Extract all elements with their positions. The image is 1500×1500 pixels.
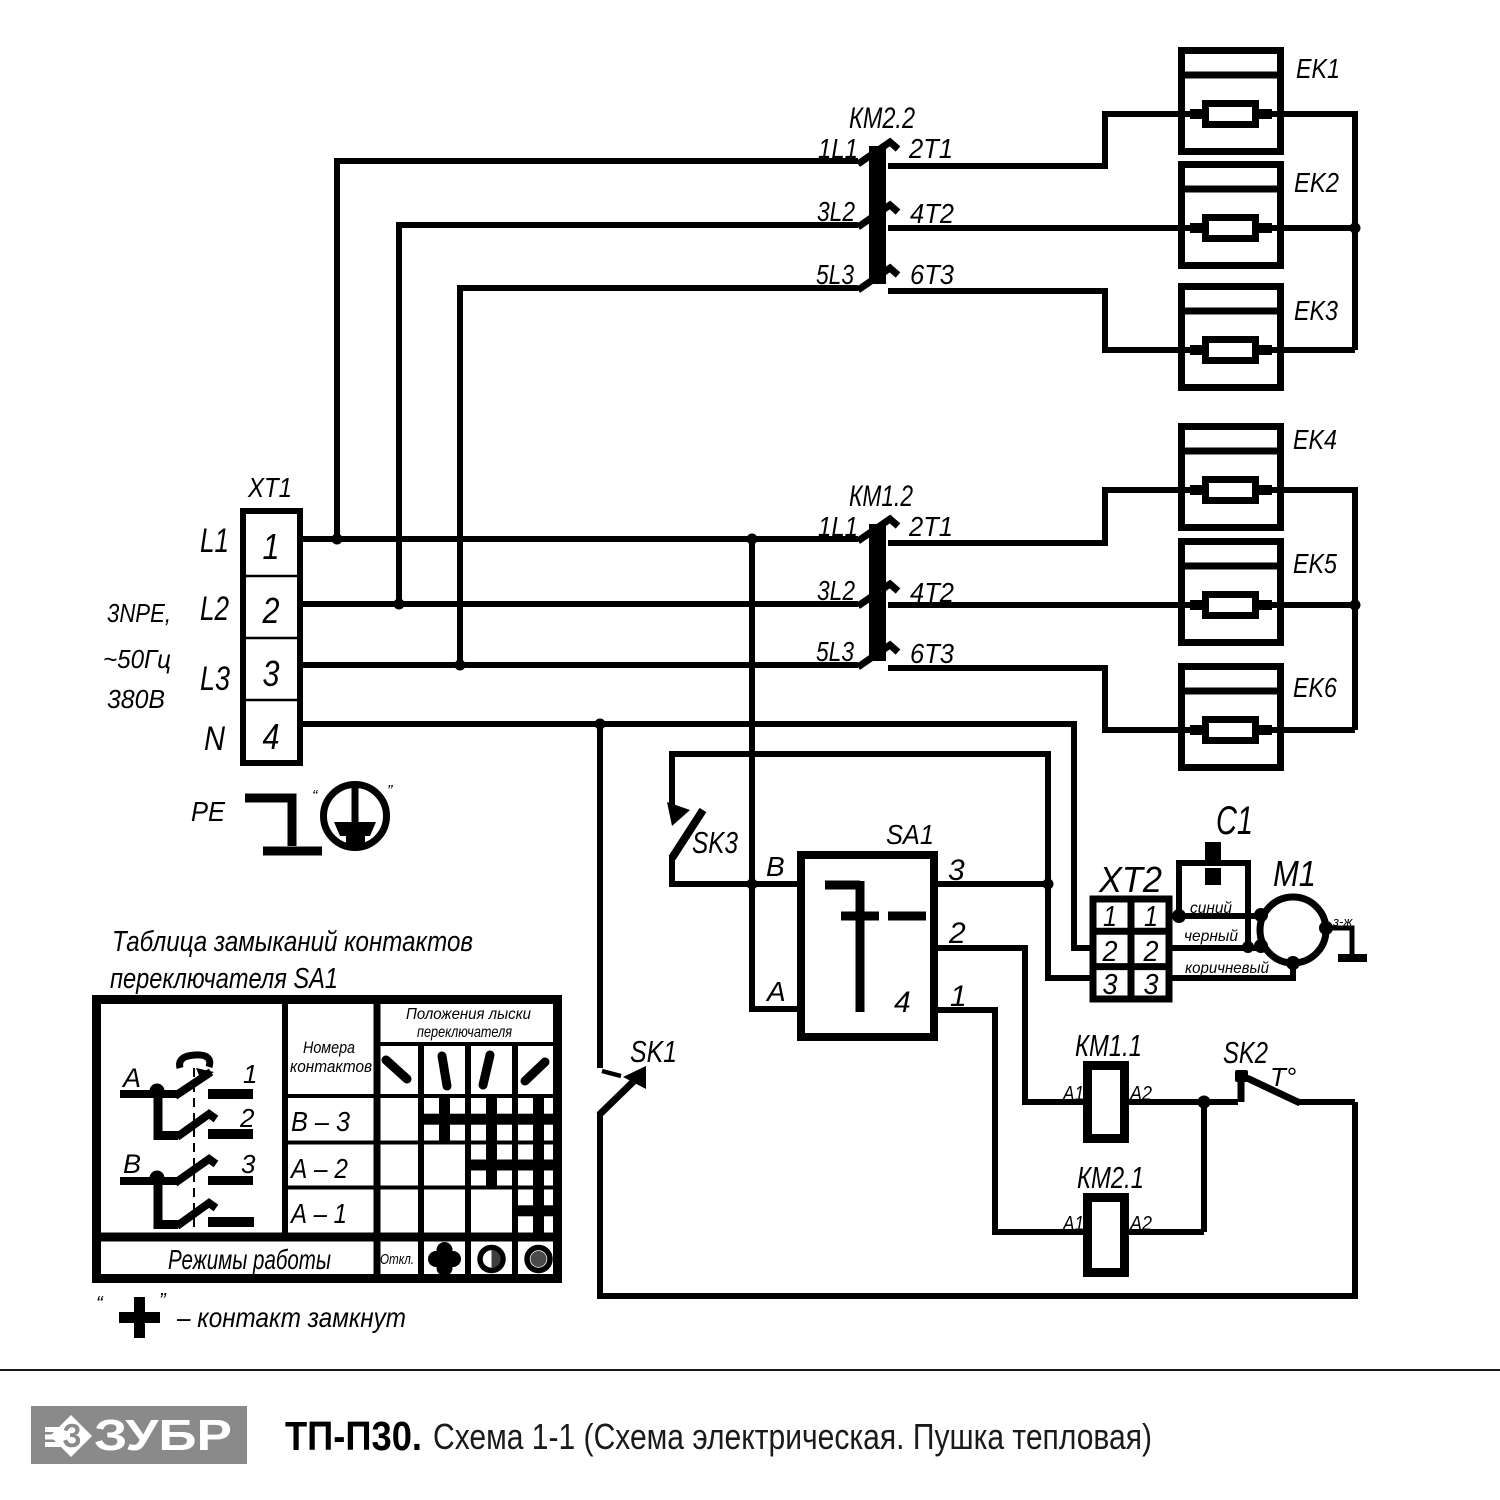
svg-text:Откл.: Откл. — [380, 1251, 414, 1268]
svg-text:А2: А2 — [1129, 1083, 1152, 1105]
svg-text:Режимы работы: Режимы работы — [168, 1244, 331, 1275]
svg-text:– контакт замкнут: – контакт замкнут — [176, 1302, 406, 1333]
svg-text:1L1: 1L1 — [818, 511, 858, 542]
svg-text:EK2: EK2 — [1294, 167, 1339, 198]
svg-text:В – 3: В – 3 — [291, 1106, 350, 1137]
svg-text:З: З — [63, 1417, 82, 1454]
svg-text:3: 3 — [241, 1149, 256, 1179]
svg-text:SK1: SK1 — [630, 1034, 677, 1069]
svg-text:А – 1: А – 1 — [289, 1198, 347, 1229]
svg-text:А: А — [765, 976, 786, 1007]
svg-text:4T2: 4T2 — [910, 198, 954, 229]
svg-text:Т°: Т° — [1270, 1062, 1296, 1092]
svg-text:1: 1 — [1144, 901, 1158, 933]
svg-text:L1: L1 — [200, 522, 229, 560]
svg-text:2T1: 2T1 — [908, 133, 953, 164]
svg-text:контактов: контактов — [290, 1057, 372, 1076]
svg-text:SK3: SK3 — [692, 825, 738, 860]
svg-text:А: А — [121, 1063, 141, 1093]
svg-text:С1: С1 — [1216, 799, 1253, 843]
svg-text:380В: 380В — [107, 684, 165, 714]
svg-text:3NPE,: 3NPE, — [107, 598, 171, 628]
svg-text:2: 2 — [262, 590, 280, 631]
svg-text:3L2: 3L2 — [817, 575, 855, 606]
svg-text:XT2: XT2 — [1098, 859, 1162, 900]
svg-text:2: 2 — [1102, 936, 1118, 968]
svg-text:Схема 1-1 (Схема электрическая: Схема 1-1 (Схема электрическая. Пушка те… — [433, 1416, 1152, 1457]
svg-text:L2: L2 — [200, 590, 229, 628]
svg-text:Таблица замыканий контактов: Таблица замыканий контактов — [112, 926, 473, 958]
svg-text:синий: синий — [1190, 900, 1232, 917]
svg-text:5L3: 5L3 — [816, 636, 854, 667]
svg-text:черный: черный — [1184, 928, 1238, 945]
svg-text:EK1: EK1 — [1296, 53, 1340, 84]
svg-text:3L2: 3L2 — [817, 196, 855, 227]
svg-text:EK4: EK4 — [1293, 424, 1337, 455]
svg-text:1L1: 1L1 — [818, 133, 858, 164]
svg-text:2: 2 — [1143, 936, 1159, 968]
svg-text:”: ” — [387, 783, 393, 800]
svg-text:XT1: XT1 — [247, 472, 292, 503]
svg-text:М1: М1 — [1273, 853, 1316, 894]
svg-text:Положения лыски: Положения лыски — [406, 1006, 531, 1023]
svg-text:ТП-П30.: ТП-П30. — [285, 1413, 422, 1459]
svg-text:КМ1.1: КМ1.1 — [1075, 1028, 1142, 1063]
svg-text:3: 3 — [948, 854, 965, 887]
svg-text:1: 1 — [950, 980, 967, 1013]
svg-text:А2: А2 — [1129, 1213, 1152, 1235]
svg-text:В: В — [766, 851, 785, 882]
svg-text:КМ2.2: КМ2.2 — [849, 102, 915, 135]
svg-text:ЗУБР: ЗУБР — [94, 1411, 232, 1460]
svg-text:В: В — [123, 1149, 141, 1179]
svg-text:3: 3 — [263, 653, 280, 694]
svg-text:2: 2 — [239, 1103, 255, 1133]
svg-text:КМ2.1: КМ2.1 — [1077, 1160, 1144, 1195]
svg-text:переключателя: переключателя — [417, 1024, 512, 1041]
svg-text:SA1: SA1 — [886, 819, 934, 850]
svg-text:4: 4 — [894, 986, 911, 1019]
svg-text:А – 2: А – 2 — [289, 1153, 348, 1184]
svg-text:~50Гц: ~50Гц — [103, 644, 171, 674]
svg-text:Номера: Номера — [303, 1038, 355, 1057]
svg-text:2T1: 2T1 — [908, 511, 953, 542]
svg-text:SK2: SK2 — [1223, 1035, 1268, 1070]
svg-text:PE: PE — [191, 796, 225, 827]
svg-text:А1: А1 — [1062, 1213, 1084, 1235]
svg-text:1: 1 — [263, 526, 280, 567]
svg-text:4T2: 4T2 — [910, 577, 954, 608]
svg-text:переключателя SA1: переключателя SA1 — [110, 963, 338, 995]
svg-text:2: 2 — [948, 917, 966, 950]
svg-text:3: 3 — [1144, 969, 1159, 1001]
svg-text:3: 3 — [1103, 969, 1118, 1001]
svg-text:L3: L3 — [200, 660, 230, 698]
svg-text:EK3: EK3 — [1294, 295, 1338, 326]
svg-text:5L3: 5L3 — [816, 259, 854, 290]
svg-text:1: 1 — [1103, 901, 1117, 933]
svg-text:N: N — [204, 720, 225, 758]
svg-text:А1: А1 — [1062, 1083, 1084, 1105]
svg-text:КМ1.2: КМ1.2 — [849, 480, 913, 513]
svg-text:з-ж: з-ж — [1332, 914, 1353, 929]
svg-text:6T3: 6T3 — [910, 259, 954, 290]
svg-text:EK6: EK6 — [1293, 672, 1337, 703]
svg-text:EK5: EK5 — [1293, 548, 1337, 579]
svg-text:1: 1 — [243, 1059, 257, 1089]
svg-text:6T3: 6T3 — [910, 638, 954, 669]
svg-text:коричневый: коричневый — [1185, 960, 1269, 977]
svg-text:4: 4 — [263, 716, 280, 757]
